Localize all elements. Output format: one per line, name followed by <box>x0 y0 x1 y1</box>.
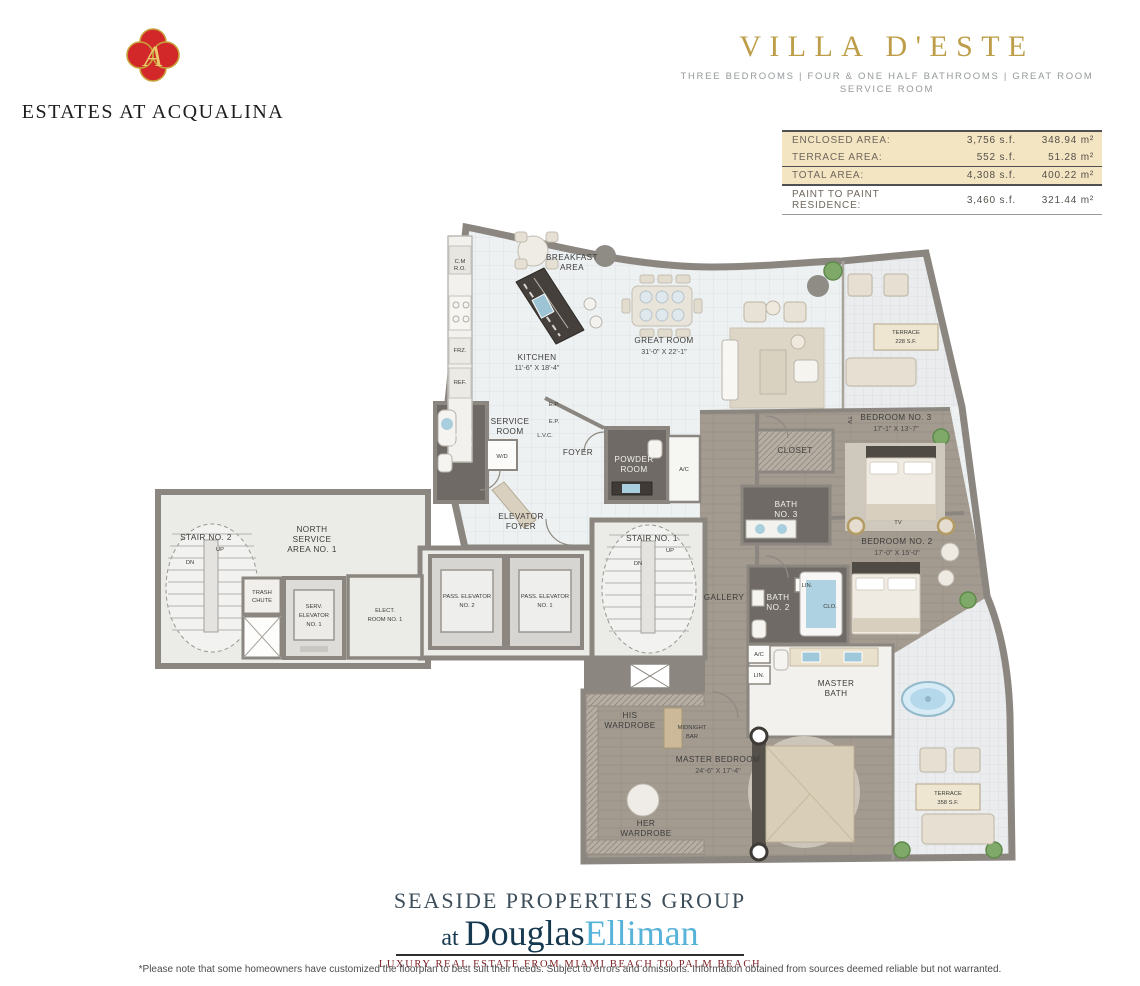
plant <box>960 592 976 608</box>
terrace-sofa <box>846 358 916 386</box>
svg-text:AREA NO. 1: AREA NO. 1 <box>287 545 337 554</box>
svg-text:NO. 1: NO. 1 <box>306 622 321 628</box>
svg-text:NO. 1: NO. 1 <box>537 603 552 609</box>
bath3-vanity <box>746 520 796 538</box>
label-ac: A/C <box>754 652 764 658</box>
nightstand <box>848 518 864 534</box>
label-foyer: FOYER <box>563 448 593 457</box>
label-tv: TV <box>846 416 852 424</box>
label-north-service: NORTH <box>296 525 327 534</box>
douglas-elliman-dark: Douglas <box>465 913 585 953</box>
svg-text:358 S.F.: 358 S.F. <box>937 800 959 806</box>
terrace-chair <box>954 748 980 772</box>
svg-text:BAR: BAR <box>686 734 698 740</box>
master-toilet <box>774 650 788 670</box>
label-elevator-foyer: ELEVATOR <box>498 512 544 521</box>
column <box>807 275 829 297</box>
label-stair2: STAIR NO. 2 <box>180 533 232 542</box>
label-breakfast: BREAKFAST <box>546 253 598 262</box>
label-clo: CLO. <box>823 604 837 610</box>
label-pass-elev1: PASS. ELEVATOR <box>521 594 569 600</box>
plant <box>824 262 842 280</box>
label-lin: LIN. <box>754 673 765 679</box>
label-ref: REF. <box>454 380 467 386</box>
bed2-headboard <box>852 562 920 574</box>
service-core <box>158 492 705 692</box>
bath2-sink <box>752 590 764 606</box>
trash-chute <box>243 578 281 614</box>
seaside-properties-line: SEASIDE PROPERTIES GROUP <box>0 888 1140 914</box>
label-up: UP <box>216 547 224 553</box>
svg-text:SERVICE: SERVICE <box>293 535 332 544</box>
label-dw: D.W. <box>527 326 540 332</box>
terrace-sign-lower <box>916 784 980 810</box>
douglas-elliman-light: Elliman <box>585 913 699 953</box>
svg-text:31'-0" X 22'-1": 31'-0" X 22'-1" <box>641 347 687 356</box>
floorplan-page: A ESTATES AT ACQUALINA VILLA D'ESTE THRE… <box>0 0 1140 986</box>
label-bath2: BATH <box>767 593 790 602</box>
svg-text:FOYER: FOYER <box>506 522 536 531</box>
svg-text:228 S.F.: 228 S.F. <box>895 339 917 345</box>
svg-text:ELEVATOR: ELEVATOR <box>299 613 329 619</box>
terrace-sign-upper <box>874 324 938 350</box>
svg-text:WARDROBE: WARDROBE <box>620 829 671 838</box>
label-lvc: L.V.C. <box>537 433 553 439</box>
svg-text:NO. 2: NO. 2 <box>766 603 789 612</box>
floorplan-drawing: BREAKFAST AREA KITCHEN 11'-6" X 18'-4" G… <box>0 0 1140 986</box>
label-powder: POWDER <box>614 455 653 464</box>
svg-text:BATH: BATH <box>825 689 848 698</box>
label-serv-elevator: SERV. <box>306 604 323 610</box>
bed3-headboard <box>866 446 936 458</box>
label-her-wardrobe: HER <box>637 819 656 828</box>
plant <box>933 429 949 445</box>
svg-text:ROOM NO. 1: ROOM NO. 1 <box>368 617 403 623</box>
terrace-chair <box>884 274 908 296</box>
label-elect-room: ELECT. <box>375 608 395 614</box>
lamp <box>751 844 767 860</box>
svg-text:24'-6" X 17'-4": 24'-6" X 17'-4" <box>695 766 741 775</box>
lamp <box>751 728 767 744</box>
label-great-room: GREAT ROOM <box>634 336 693 345</box>
svg-text:NO. 2: NO. 2 <box>459 603 474 609</box>
sofa <box>722 340 738 400</box>
nightstand <box>938 518 954 534</box>
label-pass-elev2: PASS. ELEVATOR <box>443 594 491 600</box>
armchair <box>744 302 766 322</box>
armchair <box>784 302 806 322</box>
label-cm: C.M <box>455 259 466 265</box>
terrace-chair <box>920 748 946 772</box>
brokerage-logo: SEASIDE PROPERTIES GROUP at DouglasEllim… <box>0 888 1140 970</box>
label-midnight-bar: MIDNIGHT <box>678 725 707 731</box>
terrace-chair <box>848 274 872 296</box>
bath4-toilet <box>438 454 452 472</box>
stool <box>584 298 596 310</box>
label-gallery: GALLERY <box>704 593 745 602</box>
svg-text:11'-6" X 18'-4": 11'-6" X 18'-4" <box>515 363 560 372</box>
label-closet: CLOSET <box>777 446 812 455</box>
label-stair1: STAIR NO. 1 <box>626 534 678 543</box>
armchair <box>941 543 959 561</box>
label-bedroom2: BEDROOM NO. 2 <box>861 537 932 546</box>
label-ep: E.P. <box>549 402 560 408</box>
douglas-elliman-at: at <box>441 925 464 951</box>
coffee-table <box>760 350 786 394</box>
label-trash: TRASH <box>252 590 272 596</box>
label-wd: W/D <box>496 454 507 460</box>
svg-text:ROOM: ROOM <box>620 465 647 474</box>
label-frz: FRZ. <box>454 348 467 354</box>
label-dn: DN <box>634 561 642 567</box>
svg-text:17'-1" X 13'-7": 17'-1" X 13'-7" <box>873 424 919 433</box>
label-terrace-lower: TERRACE <box>934 791 962 797</box>
svg-text:AREA: AREA <box>560 263 584 272</box>
plant <box>894 842 910 858</box>
label-dn: DN <box>186 560 194 566</box>
label-tc: T.C. <box>526 285 537 291</box>
stool <box>590 316 602 328</box>
bath2-toilet <box>752 620 766 638</box>
svg-text:17'-0" X 15'-0": 17'-0" X 15'-0" <box>874 548 920 557</box>
logo-rule <box>396 954 744 956</box>
armchair <box>794 360 818 382</box>
svg-text:WARDROBE: WARDROBE <box>604 721 655 730</box>
label-his-wardrobe: HIS <box>623 711 638 720</box>
label-bath4: BATH <box>450 429 473 438</box>
label-up: UP <box>666 548 674 554</box>
svg-text:CHUTE: CHUTE <box>252 598 272 604</box>
label-tv: TV <box>894 520 902 526</box>
label-bedroom3: BEDROOM NO. 3 <box>860 413 931 422</box>
label-kitchen: KITCHEN <box>518 353 557 362</box>
label-ep: E.P. <box>549 419 560 425</box>
label-terrace-upper: TERRACE <box>892 330 920 336</box>
svg-text:ROOM: ROOM <box>496 427 523 436</box>
label-master-bath: MASTER <box>818 679 855 688</box>
label-service-room: SERVICE <box>491 417 530 426</box>
svg-text:NO. 3: NO. 3 <box>774 510 797 519</box>
wardrobe-ottoman <box>627 784 659 816</box>
label-ro: R.O. <box>454 266 466 272</box>
label-lin: LIN. <box>802 583 813 589</box>
label-master-bedroom: MASTER BEDROOM <box>676 755 760 764</box>
armchair <box>938 570 954 586</box>
terrace-sofa <box>922 814 994 844</box>
disclaimer-text: *Please note that some homeowners have c… <box>0 964 1140 975</box>
svg-text:NO. 4: NO. 4 <box>449 439 472 448</box>
label-bath3: BATH <box>775 500 798 509</box>
label-ac: A/C <box>679 467 689 473</box>
